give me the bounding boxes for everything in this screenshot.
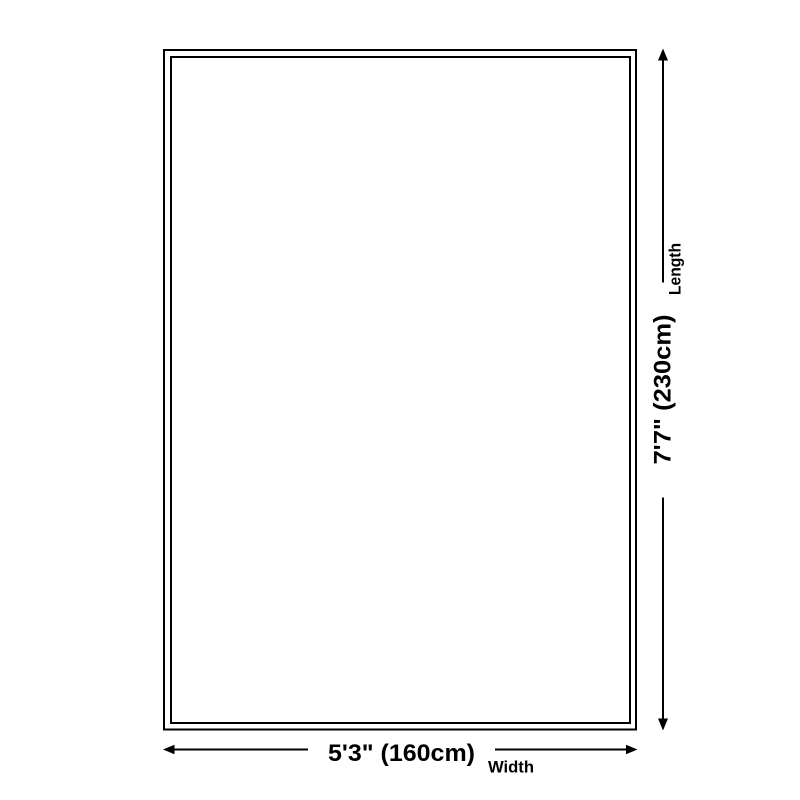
svg-text:7'7" (230cm): 7'7" (230cm) — [650, 315, 677, 465]
svg-text:Width: Width — [488, 758, 534, 777]
svg-text:5'3" (160cm): 5'3" (160cm) — [328, 740, 475, 767]
svg-text:Length: Length — [666, 243, 685, 295]
